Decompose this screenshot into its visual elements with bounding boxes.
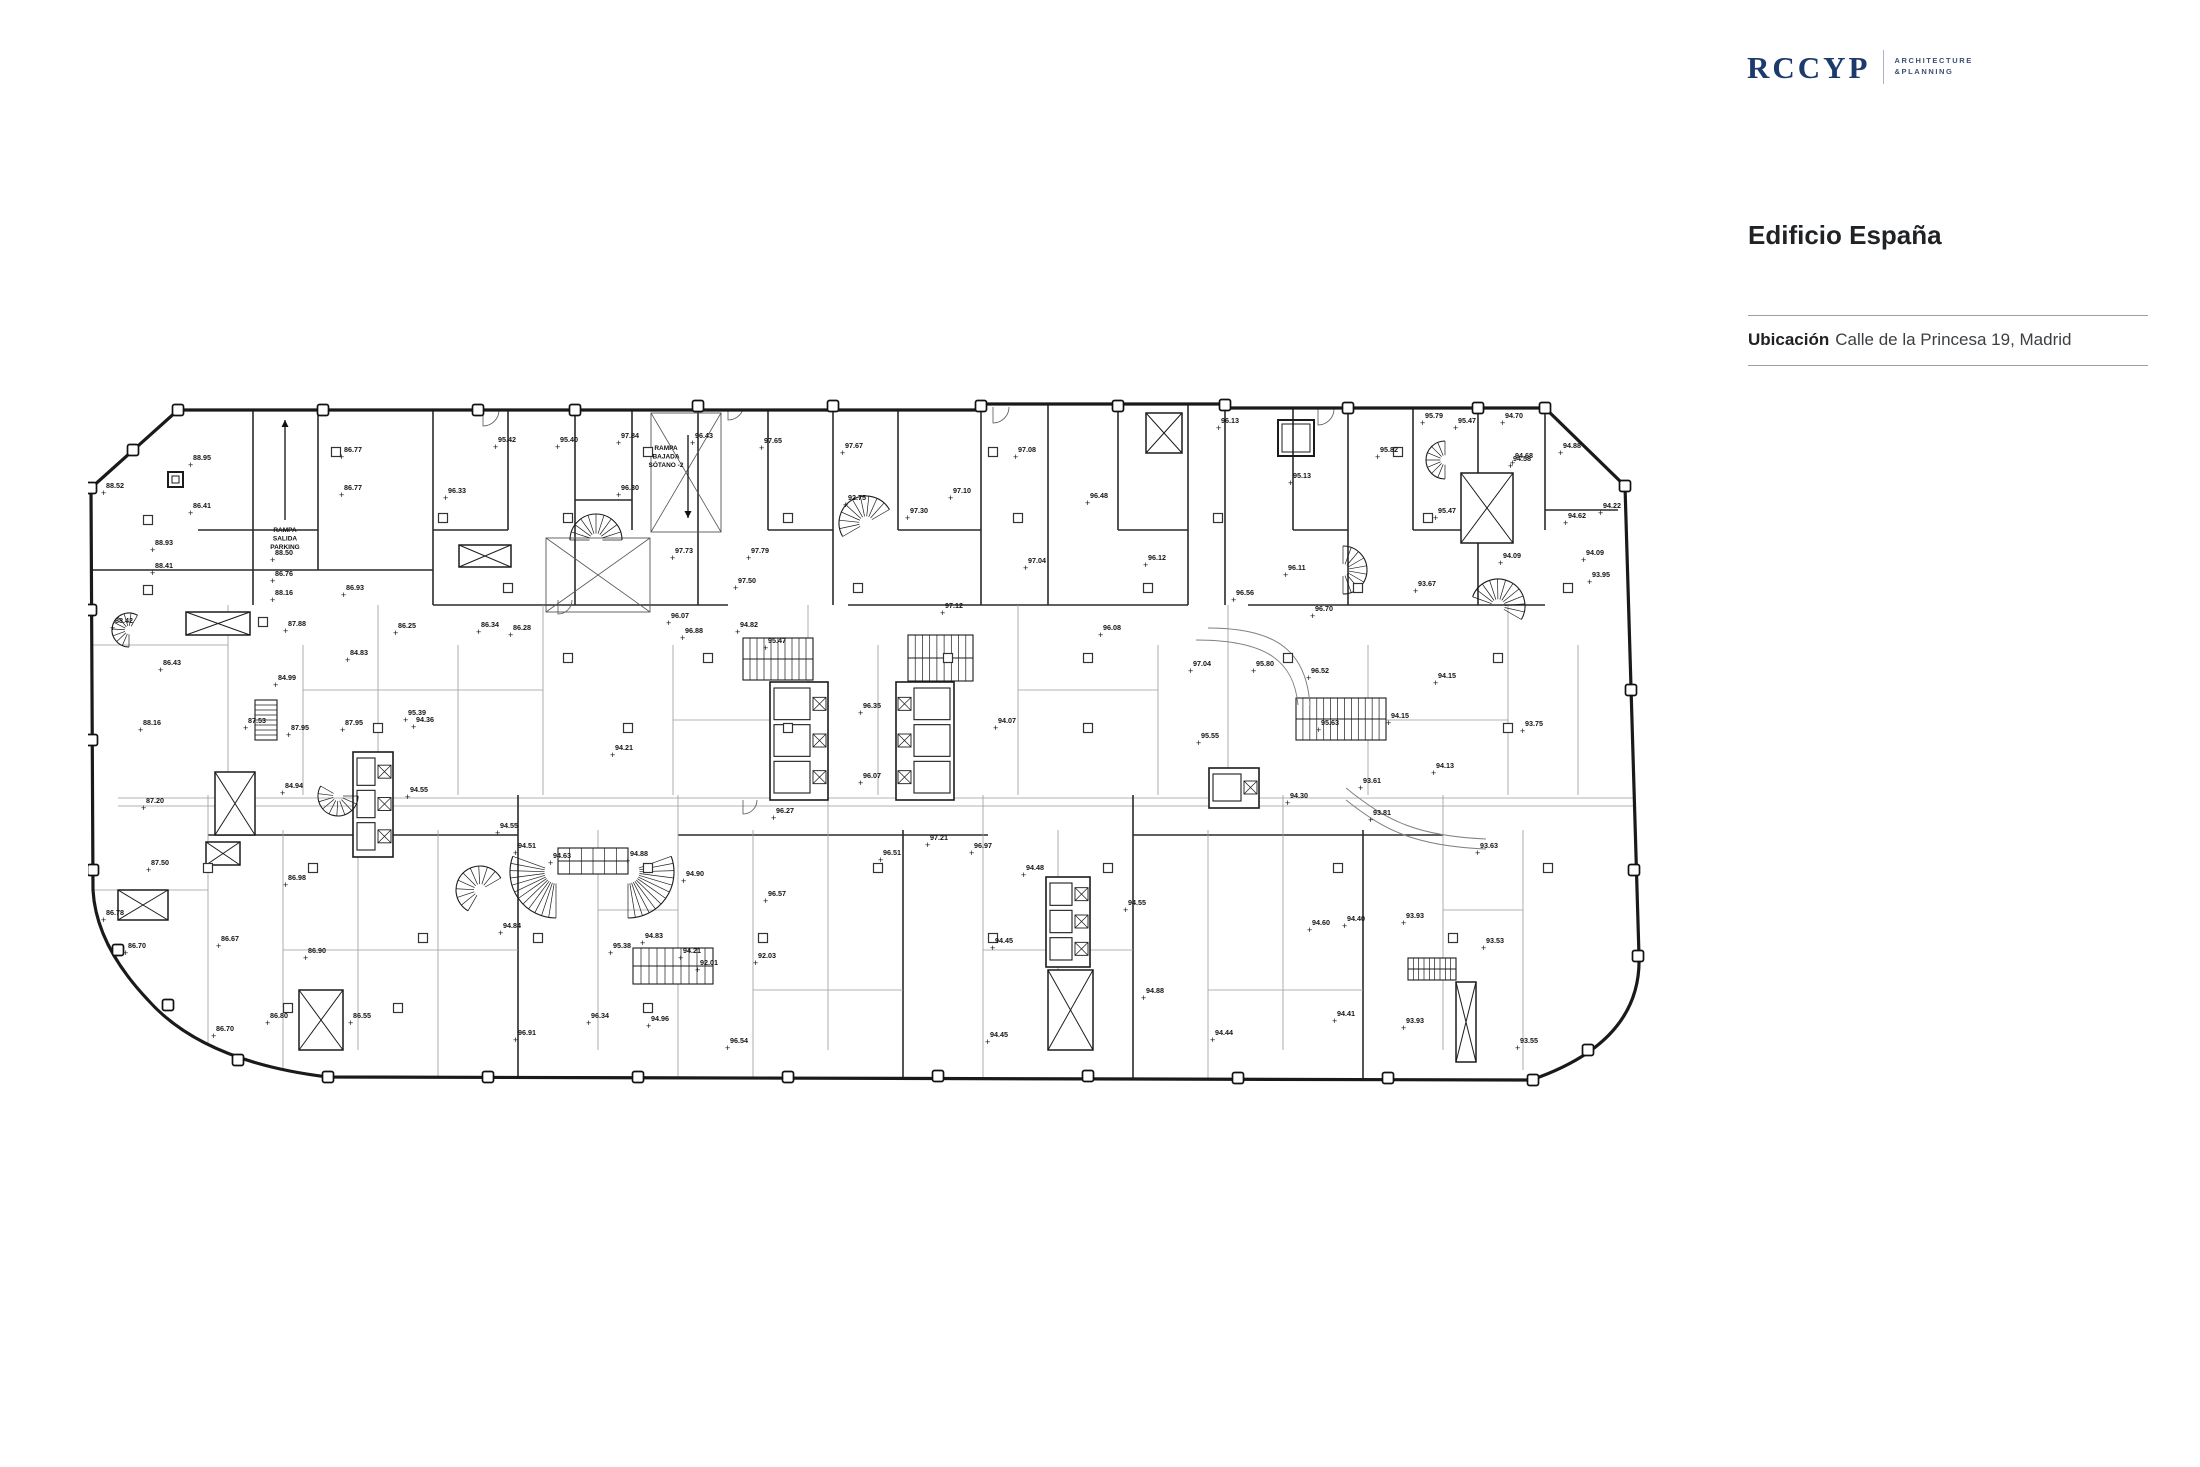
svg-text:94.40: 94.40 — [1347, 914, 1365, 923]
svg-text:88.93: 88.93 — [155, 538, 173, 547]
svg-text:+: + — [1498, 558, 1503, 568]
svg-text:+: + — [725, 1043, 730, 1053]
spot-elevation: 94.15+ — [1386, 711, 1409, 728]
spot-elevation: 94.62+ — [1563, 511, 1586, 528]
svg-text:84.99: 84.99 — [278, 673, 296, 682]
svg-text:94.30: 94.30 — [1290, 791, 1308, 800]
spot-elevation: 88.95+ — [188, 453, 211, 470]
spot-elevation: 95.47+ — [1433, 506, 1456, 523]
svg-text:+: + — [1188, 666, 1193, 676]
svg-text:+: + — [681, 876, 686, 886]
spot-elevation: 96.48+ — [1085, 491, 1108, 508]
spot-elevation: 96.13+ — [1216, 416, 1239, 433]
svg-text:+: + — [616, 438, 621, 448]
svg-text:94.68: 94.68 — [1515, 451, 1533, 460]
svg-text:96.33: 96.33 — [448, 486, 466, 495]
spot-elevation: 94.51+ — [513, 841, 536, 858]
svg-text:88.50: 88.50 — [275, 548, 293, 557]
plan-stairs — [255, 635, 1456, 984]
svg-text:97.04: 97.04 — [1193, 659, 1211, 668]
svg-text:96.34: 96.34 — [591, 1011, 609, 1020]
svg-text:+: + — [393, 628, 398, 638]
svg-text:+: + — [843, 500, 848, 510]
spot-elevation: 94.83+ — [640, 931, 663, 948]
svg-text:+: + — [1216, 423, 1221, 433]
spot-elevation: 86.93+ — [341, 583, 364, 600]
svg-text:+: + — [1510, 458, 1515, 468]
spot-elevation: 86.77+ — [339, 445, 362, 462]
svg-text:87.20: 87.20 — [146, 796, 164, 805]
svg-text:97.08: 97.08 — [1018, 445, 1036, 454]
svg-text:+: + — [340, 725, 345, 735]
spot-elevation: 96.91+ — [513, 1028, 536, 1045]
spot-elevation: 96.54+ — [725, 1036, 748, 1053]
svg-text:+: + — [858, 778, 863, 788]
svg-text:+: + — [1475, 848, 1480, 858]
spot-elevation: 84.99+ — [273, 673, 296, 690]
svg-text:+: + — [123, 948, 128, 958]
spot-elevation: 96.57+ — [763, 889, 786, 906]
brand-logo: RCCYP ARCHITECTURE &PLANNING — [1747, 50, 1973, 84]
spot-elevation: 94.55+ — [1123, 898, 1146, 915]
plan-walls — [93, 404, 1633, 1080]
svg-text:+: + — [1515, 1043, 1520, 1053]
svg-text:95.55: 95.55 — [1201, 731, 1219, 740]
spot-elevation: 97.67+ — [840, 441, 863, 458]
svg-text:+: + — [345, 655, 350, 665]
svg-text:94.51: 94.51 — [518, 841, 536, 850]
floor-plan-svg: RAMPASALIDAPARKINGRAMPABAJADASÓTANO -288… — [88, 390, 1678, 1120]
svg-text:+: + — [1420, 418, 1425, 428]
svg-text:+: + — [925, 840, 930, 850]
spot-elevation: 97.73+ — [670, 546, 693, 563]
svg-text:+: + — [273, 680, 278, 690]
svg-text:+: + — [339, 452, 344, 462]
ramp-annotation-text: RAMPA — [654, 445, 678, 452]
svg-text:+: + — [1368, 815, 1373, 825]
svg-text:95.47: 95.47 — [1438, 506, 1456, 515]
spot-elevation: 86.67+ — [216, 934, 239, 951]
svg-text:+: + — [1598, 508, 1603, 518]
spot-elevation: 86.98+ — [283, 873, 306, 890]
svg-text:+: + — [1141, 993, 1146, 1003]
spot-elevation: 86.34+ — [476, 620, 499, 637]
spot-elevation: 93.93+ — [1401, 911, 1424, 928]
svg-text:86.25: 86.25 — [398, 621, 416, 630]
spot-elevation: 93.75+ — [1520, 719, 1543, 736]
spot-elevation: 94.90+ — [681, 869, 704, 886]
svg-text:+: + — [1581, 555, 1586, 565]
svg-text:96.30: 96.30 — [621, 483, 639, 492]
spot-elevation: 96.35+ — [858, 701, 881, 718]
svg-text:+: + — [640, 938, 645, 948]
svg-text:87.88: 87.88 — [288, 619, 306, 628]
spot-elevation: 93.95+ — [1587, 570, 1610, 587]
ramp-annotation-text: BAJADA — [652, 454, 679, 461]
svg-text:+: + — [1123, 905, 1128, 915]
spot-elevation: 94.21+ — [610, 743, 633, 760]
svg-text:+: + — [1332, 1016, 1337, 1026]
spot-elevation: 96.51+ — [878, 848, 901, 865]
spot-elevation: 87.88+ — [283, 619, 306, 636]
svg-text:88.16: 88.16 — [143, 718, 161, 727]
svg-text:+: + — [508, 630, 513, 640]
svg-text:86.43: 86.43 — [163, 658, 181, 667]
svg-text:+: + — [1231, 595, 1236, 605]
svg-text:+: + — [513, 848, 518, 858]
svg-text:+: + — [1386, 718, 1391, 728]
spot-elevation: 93.53+ — [1481, 936, 1504, 953]
svg-text:95.40: 95.40 — [560, 435, 578, 444]
svg-text:+: + — [985, 1037, 990, 1047]
spot-elevation: 95.47+ — [1453, 416, 1476, 433]
svg-text:+: + — [280, 788, 285, 798]
svg-text:+: + — [1306, 673, 1311, 683]
svg-text:+: + — [1520, 726, 1525, 736]
svg-text:+: + — [1433, 678, 1438, 688]
spot-elevation: 88.16+ — [270, 588, 293, 605]
spot-elevation: 94.09+ — [1498, 551, 1521, 568]
svg-text:96.88: 96.88 — [685, 626, 703, 635]
spot-elevation: 97.04+ — [1023, 556, 1046, 573]
svg-text:+: + — [555, 442, 560, 452]
svg-text:+: + — [513, 1035, 518, 1045]
plan-perimeter-posts — [88, 400, 1644, 1086]
svg-text:94.21: 94.21 — [683, 946, 701, 955]
svg-text:94.45: 94.45 — [990, 1030, 1008, 1039]
svg-text:94.48: 94.48 — [1026, 863, 1044, 872]
svg-text:96.11: 96.11 — [1288, 563, 1306, 572]
spot-elevation: 95.55+ — [1196, 731, 1219, 748]
svg-text:+: + — [283, 880, 288, 890]
plan-spiral-stairs — [112, 441, 1525, 918]
svg-text:+: + — [1023, 563, 1028, 573]
svg-text:94.13: 94.13 — [1436, 761, 1454, 770]
svg-text:93.75: 93.75 — [1525, 719, 1543, 728]
svg-text:86.55: 86.55 — [353, 1011, 371, 1020]
svg-text:97.65: 97.65 — [764, 436, 782, 445]
svg-text:+: + — [625, 856, 630, 866]
svg-text:93.93: 93.93 — [1406, 911, 1424, 920]
svg-text:93.63: 93.63 — [1480, 841, 1498, 850]
svg-text:86.77: 86.77 — [344, 445, 362, 454]
spot-elevation: 94.13+ — [1431, 761, 1454, 778]
spot-elevation: 95.38+ — [608, 941, 631, 958]
spot-elevation: 88.93+ — [150, 538, 173, 555]
spot-elevation: 96.12+ — [1143, 553, 1166, 570]
location-label: Ubicación — [1748, 330, 1829, 349]
spot-elevation: 96.11+ — [1283, 563, 1306, 580]
spot-elevation: 88.41+ — [150, 561, 173, 578]
plan-spot-elevations: 88.95+86.77+86.77+88.52+86.41+88.93+88.4… — [101, 411, 1621, 1053]
spot-elevation: 88.52+ — [101, 481, 124, 498]
page-title: Edificio España — [1748, 220, 1942, 251]
svg-text:96.56: 96.56 — [1236, 588, 1254, 597]
svg-text:+: + — [146, 865, 151, 875]
svg-text:+: + — [498, 928, 503, 938]
svg-text:96.13: 96.13 — [1221, 416, 1239, 425]
svg-text:+: + — [243, 723, 248, 733]
svg-text:+: + — [405, 792, 410, 802]
svg-text:+: + — [1401, 918, 1406, 928]
svg-text:+: + — [403, 715, 408, 725]
svg-text:87.95: 87.95 — [291, 723, 309, 732]
svg-text:86.77: 86.77 — [344, 483, 362, 492]
svg-text:+: + — [771, 813, 776, 823]
svg-text:+: + — [1375, 452, 1380, 462]
spot-elevation: 96.08+ — [1098, 623, 1121, 640]
svg-text:+: + — [1098, 630, 1103, 640]
svg-text:94.82: 94.82 — [740, 620, 758, 629]
svg-text:+: + — [993, 723, 998, 733]
svg-text:96.91: 96.91 — [518, 1028, 536, 1037]
svg-text:+: + — [1431, 768, 1436, 778]
spot-elevation: 86.55+ — [348, 1011, 371, 1028]
spot-elevation: 87.95+ — [286, 723, 309, 740]
svg-text:86.78: 86.78 — [106, 908, 124, 917]
svg-text:+: + — [753, 958, 758, 968]
svg-text:+: + — [1358, 783, 1363, 793]
spot-elevation: 97.65+ — [759, 436, 782, 453]
svg-text:86.67: 86.67 — [221, 934, 239, 943]
svg-text:84.83: 84.83 — [350, 648, 368, 657]
svg-text:+: + — [150, 545, 155, 555]
svg-text:88.52: 88.52 — [106, 481, 124, 490]
spot-elevation: 86.76+ — [270, 569, 293, 586]
svg-text:94.88: 94.88 — [1146, 986, 1164, 995]
svg-text:95.38: 95.38 — [613, 941, 631, 950]
svg-text:97.67: 97.67 — [845, 441, 863, 450]
spot-elevation: 94.15+ — [1433, 671, 1456, 688]
spot-elevation: 94.88+ — [1558, 441, 1581, 458]
spot-elevation: 88.42+ — [110, 616, 133, 633]
svg-text:94.09: 94.09 — [1503, 551, 1521, 560]
spot-elevation: 97.84+ — [616, 431, 639, 448]
svg-text:+: + — [443, 493, 448, 503]
svg-text:+: + — [690, 438, 695, 448]
svg-text:96.70: 96.70 — [1315, 604, 1333, 613]
svg-text:+: + — [858, 708, 863, 718]
svg-text:+: + — [341, 590, 346, 600]
svg-text:97.50: 97.50 — [738, 576, 756, 585]
spot-elevation: 94.30+ — [1285, 791, 1308, 808]
spot-elevation: 95.82+ — [1375, 445, 1398, 462]
svg-text:+: + — [101, 488, 106, 498]
svg-text:86.90: 86.90 — [308, 946, 326, 955]
svg-text:+: + — [411, 722, 416, 732]
svg-text:+: + — [735, 627, 740, 637]
svg-text:88.41: 88.41 — [155, 561, 173, 570]
svg-text:+: + — [1288, 478, 1293, 488]
spot-elevation: 86.80+ — [265, 1011, 288, 1028]
svg-text:94.88: 94.88 — [630, 849, 648, 858]
svg-text:+: + — [1085, 498, 1090, 508]
svg-text:96.43: 96.43 — [695, 431, 713, 440]
svg-text:+: + — [495, 828, 500, 838]
svg-text:+: + — [1210, 1035, 1215, 1045]
svg-text:95.47: 95.47 — [768, 636, 786, 645]
svg-text:96.35: 96.35 — [863, 701, 881, 710]
svg-text:94.63: 94.63 — [553, 851, 571, 860]
svg-text:+: + — [646, 1021, 651, 1031]
svg-text:93.53: 93.53 — [1486, 936, 1504, 945]
spot-elevation: 93.63+ — [1475, 841, 1498, 858]
spot-elevation: 96.70+ — [1310, 604, 1333, 621]
svg-text:88.42: 88.42 — [115, 616, 133, 625]
building-outline — [91, 404, 1639, 1080]
svg-text:94.15: 94.15 — [1391, 711, 1409, 720]
svg-text:95.47: 95.47 — [1458, 416, 1476, 425]
svg-text:84.94: 84.94 — [285, 781, 303, 790]
svg-text:88.95: 88.95 — [193, 453, 211, 462]
svg-text:96.97: 96.97 — [974, 841, 992, 850]
svg-text:+: + — [1316, 725, 1321, 735]
spot-elevation: 93.61+ — [1358, 776, 1381, 793]
svg-text:+: + — [878, 855, 883, 865]
svg-text:+: + — [339, 490, 344, 500]
spot-elevation: 97.10+ — [948, 486, 971, 503]
svg-text:+: + — [216, 941, 221, 951]
svg-text:+: + — [141, 803, 146, 813]
plan-interior — [93, 404, 1633, 1080]
svg-text:92.03: 92.03 — [758, 951, 776, 960]
svg-text:94.55: 94.55 — [1128, 898, 1146, 907]
svg-text:97.10: 97.10 — [953, 486, 971, 495]
svg-text:+: + — [905, 513, 910, 523]
spot-elevation: 86.28+ — [508, 623, 531, 640]
brand-tagline-line2: &PLANNING — [1895, 67, 1973, 78]
svg-text:+: + — [1453, 423, 1458, 433]
svg-text:86.28: 86.28 — [513, 623, 531, 632]
svg-text:94.70: 94.70 — [1505, 411, 1523, 420]
svg-text:+: + — [1413, 586, 1418, 596]
spot-elevation: 88.16+ — [138, 718, 161, 735]
spot-elevation: 93.93+ — [1401, 1016, 1424, 1033]
svg-text:87.95: 87.95 — [345, 718, 363, 727]
svg-text:86.93: 86.93 — [346, 583, 364, 592]
spot-elevation: 96.33+ — [443, 486, 466, 503]
brand-tagline: ARCHITECTURE &PLANNING — [1895, 56, 1973, 78]
spot-elevation: 86.70+ — [123, 941, 146, 958]
svg-text:+: + — [948, 493, 953, 503]
svg-text:+: + — [286, 730, 291, 740]
spot-elevation: 93.67+ — [1413, 579, 1436, 596]
plan-elevator-cores — [353, 682, 1259, 967]
svg-text:94.90: 94.90 — [686, 869, 704, 878]
svg-text:96.07: 96.07 — [671, 611, 689, 620]
svg-text:+: + — [969, 848, 974, 858]
spot-elevation: 97.50+ — [733, 576, 756, 593]
svg-text:96.51: 96.51 — [883, 848, 901, 857]
svg-text:+: + — [348, 1018, 353, 1028]
spot-elevation: 96.88+ — [680, 626, 703, 643]
svg-text:+: + — [695, 965, 700, 975]
svg-text:86.41: 86.41 — [193, 501, 211, 510]
svg-text:+: + — [733, 583, 738, 593]
svg-text:+: + — [1342, 921, 1347, 931]
svg-text:96.54: 96.54 — [730, 1036, 748, 1045]
spot-elevation: 87.95+ — [340, 718, 363, 735]
svg-text:+: + — [1143, 560, 1148, 570]
svg-text:94.55: 94.55 — [500, 821, 518, 830]
spot-elevation: 95.42+ — [493, 435, 516, 452]
svg-text:+: + — [270, 595, 275, 605]
spot-elevation: 86.43+ — [158, 658, 181, 675]
svg-text:+: + — [110, 623, 115, 633]
svg-text:96.57: 96.57 — [768, 889, 786, 898]
svg-text:96.08: 96.08 — [1103, 623, 1121, 632]
svg-text:97.04: 97.04 — [1028, 556, 1046, 565]
svg-text:87.53: 87.53 — [248, 716, 266, 725]
spot-elevation: 86.41+ — [188, 501, 211, 518]
spot-elevation: 97.04+ — [1188, 659, 1211, 676]
svg-text:87.50: 87.50 — [151, 858, 169, 867]
spot-elevation: 92.03+ — [753, 951, 776, 968]
ramp-annotation-text: SALIDA — [273, 536, 298, 543]
svg-text:86.98: 86.98 — [288, 873, 306, 882]
svg-text:+: + — [1500, 418, 1505, 428]
spot-elevation: 94.82+ — [735, 620, 758, 637]
svg-text:97.79: 97.79 — [751, 546, 769, 555]
spot-elevation: 97.30+ — [905, 506, 928, 523]
spot-elevation: 87.20+ — [141, 796, 164, 813]
svg-text:+: + — [1283, 570, 1288, 580]
svg-text:94.41: 94.41 — [1337, 1009, 1355, 1018]
svg-text:96.12: 96.12 — [1148, 553, 1166, 562]
svg-text:97.30: 97.30 — [910, 506, 928, 515]
spot-elevation: 94.45+ — [985, 1030, 1008, 1047]
svg-text:+: + — [211, 1031, 216, 1041]
svg-text:86.76: 86.76 — [275, 569, 293, 578]
svg-text:+: + — [610, 750, 615, 760]
svg-text:94.88: 94.88 — [1563, 441, 1581, 450]
page: { "brand": { "logo_text": "RCCYP", "tagl… — [0, 0, 2200, 1467]
svg-text:+: + — [1558, 448, 1563, 458]
svg-text:94.45: 94.45 — [995, 936, 1013, 945]
svg-text:+: + — [586, 1018, 591, 1028]
logo-divider — [1883, 50, 1884, 84]
spot-elevation: 84.83+ — [345, 648, 368, 665]
svg-text:+: + — [476, 627, 481, 637]
svg-text:95.63: 95.63 — [1321, 718, 1339, 727]
svg-text:+: + — [270, 555, 275, 565]
spot-elevation: 87.50+ — [146, 858, 169, 875]
spot-elevation: 93.81+ — [1368, 808, 1391, 825]
svg-text:93.95: 93.95 — [1592, 570, 1610, 579]
spot-elevation: 94.41+ — [1332, 1009, 1355, 1026]
spot-elevation: 96.97+ — [969, 841, 992, 858]
spot-elevation: 86.90+ — [303, 946, 326, 963]
svg-text:+: + — [990, 943, 995, 953]
spot-elevation: 94.40+ — [1342, 914, 1365, 931]
svg-text:+: + — [608, 948, 613, 958]
svg-text:+: + — [1401, 1023, 1406, 1033]
svg-text:95.13: 95.13 — [1293, 471, 1311, 480]
spot-elevation: 96.27+ — [771, 806, 794, 823]
spot-elevation: 94.36+ — [411, 715, 434, 732]
svg-text:+: + — [1310, 611, 1315, 621]
svg-text:+: + — [763, 896, 768, 906]
svg-text:92.01: 92.01 — [700, 958, 718, 967]
svg-text:+: + — [746, 553, 751, 563]
spot-elevation: 94.22+ — [1598, 501, 1621, 518]
location-value: Calle de la Princesa 19, Madrid — [1835, 330, 2071, 349]
svg-text:+: + — [1196, 738, 1201, 748]
svg-text:93.81: 93.81 — [1373, 808, 1391, 817]
spot-elevation: 96.07+ — [858, 771, 881, 788]
svg-text:+: + — [666, 618, 671, 628]
ramp-annotation-text: SÓTANO -2 — [649, 460, 684, 469]
